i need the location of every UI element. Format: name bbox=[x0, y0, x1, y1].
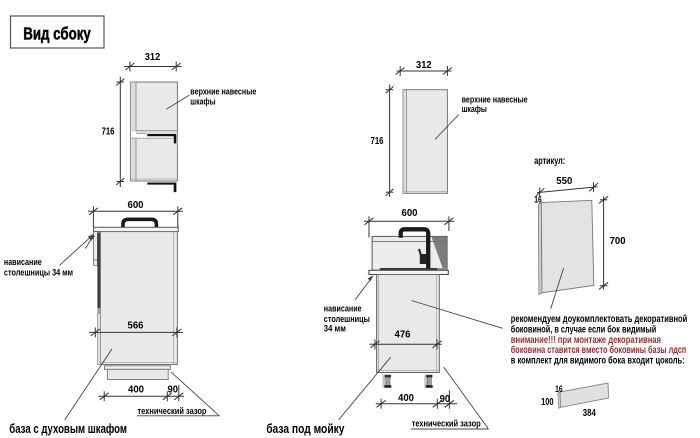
svg-text:столешницы 34 мм: столешницы 34 мм bbox=[4, 267, 73, 278]
svg-text:боковиной, в случае если бок в: боковиной, в случае если бок видимый bbox=[511, 323, 657, 335]
svg-text:технический зазор: технический зазор bbox=[138, 406, 207, 417]
svg-text:400: 400 bbox=[128, 384, 144, 396]
svg-text:база с духовым шкафом: база с духовым шкафом bbox=[9, 422, 127, 436]
svg-text:16: 16 bbox=[555, 384, 563, 394]
svg-text:100: 100 bbox=[541, 397, 554, 408]
svg-text:600: 600 bbox=[402, 207, 418, 219]
svg-text:312: 312 bbox=[145, 51, 161, 63]
svg-text:в комплект для видимого бока в: в комплект для видимого бока входит цоко… bbox=[511, 354, 685, 366]
svg-text:шкафы: шкафы bbox=[462, 104, 487, 115]
svg-text:476: 476 bbox=[395, 329, 411, 341]
svg-text:90: 90 bbox=[440, 393, 451, 405]
svg-text:база под мойку: база под мойку bbox=[266, 422, 344, 436]
svg-text:700: 700 bbox=[610, 235, 626, 247]
svg-text:рекомендуем доукомплектовать д: рекомендуем доукомплектовать декоративно… bbox=[511, 314, 688, 325]
svg-text:Вид сбоку: Вид сбоку bbox=[23, 24, 91, 44]
svg-text:34 мм: 34 мм bbox=[324, 324, 346, 335]
svg-text:шкафы: шкафы bbox=[190, 96, 215, 107]
svg-text:566: 566 bbox=[128, 320, 144, 332]
svg-text:600: 600 bbox=[128, 199, 144, 211]
svg-text:артикул:: артикул: bbox=[534, 156, 565, 167]
svg-text:400: 400 bbox=[398, 392, 414, 404]
svg-text:312: 312 bbox=[416, 59, 432, 71]
svg-text:550: 550 bbox=[556, 175, 572, 187]
svg-text:716: 716 bbox=[102, 126, 115, 138]
svg-text:90: 90 bbox=[168, 384, 179, 396]
svg-text:нависание: нависание bbox=[324, 304, 362, 315]
svg-text:716: 716 bbox=[371, 135, 384, 147]
svg-text:384: 384 bbox=[583, 408, 596, 419]
svg-text:технический зазор: технический зазор bbox=[412, 419, 481, 430]
svg-text:боковина ставится вместо боков: боковина ставится вместо боковины базы л… bbox=[511, 344, 686, 356]
